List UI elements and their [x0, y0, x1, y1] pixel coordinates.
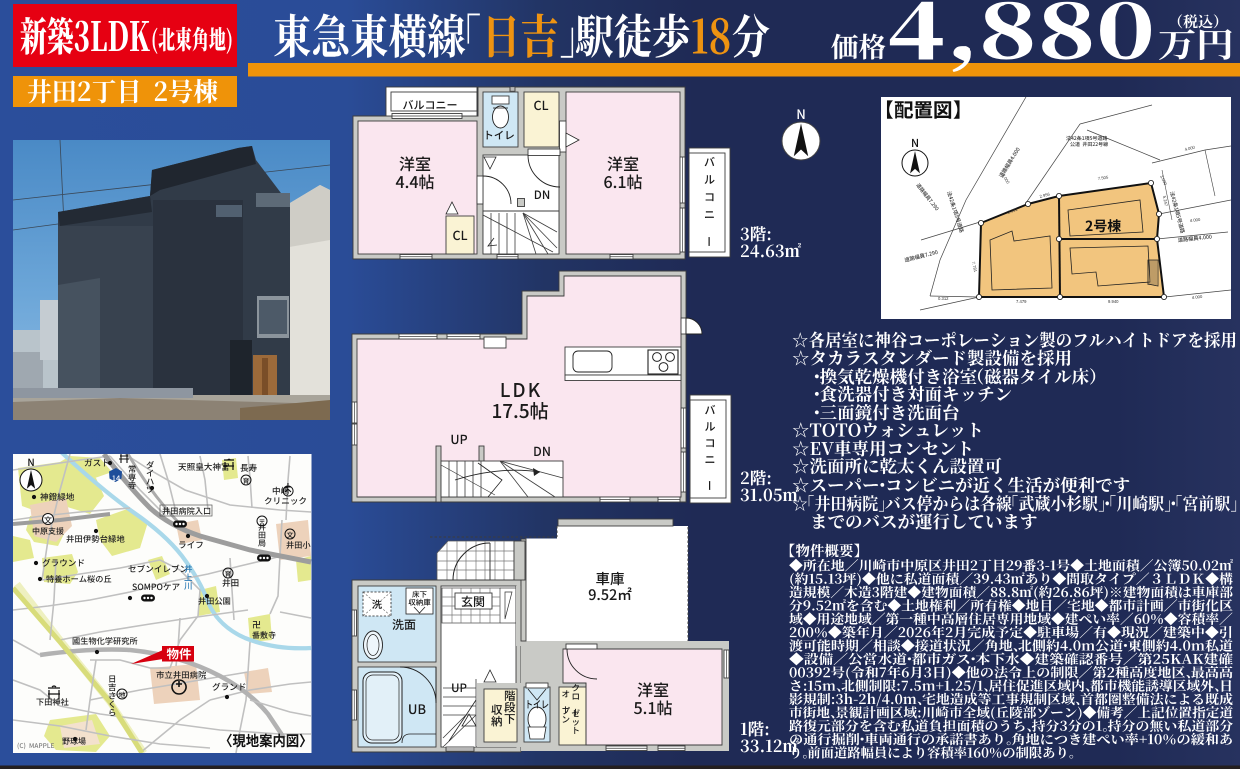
svg-text:0.312: 0.312 — [938, 296, 949, 301]
svg-text:9.940: 9.940 — [1108, 299, 1119, 304]
svg-text:7.479: 7.479 — [1016, 299, 1027, 304]
